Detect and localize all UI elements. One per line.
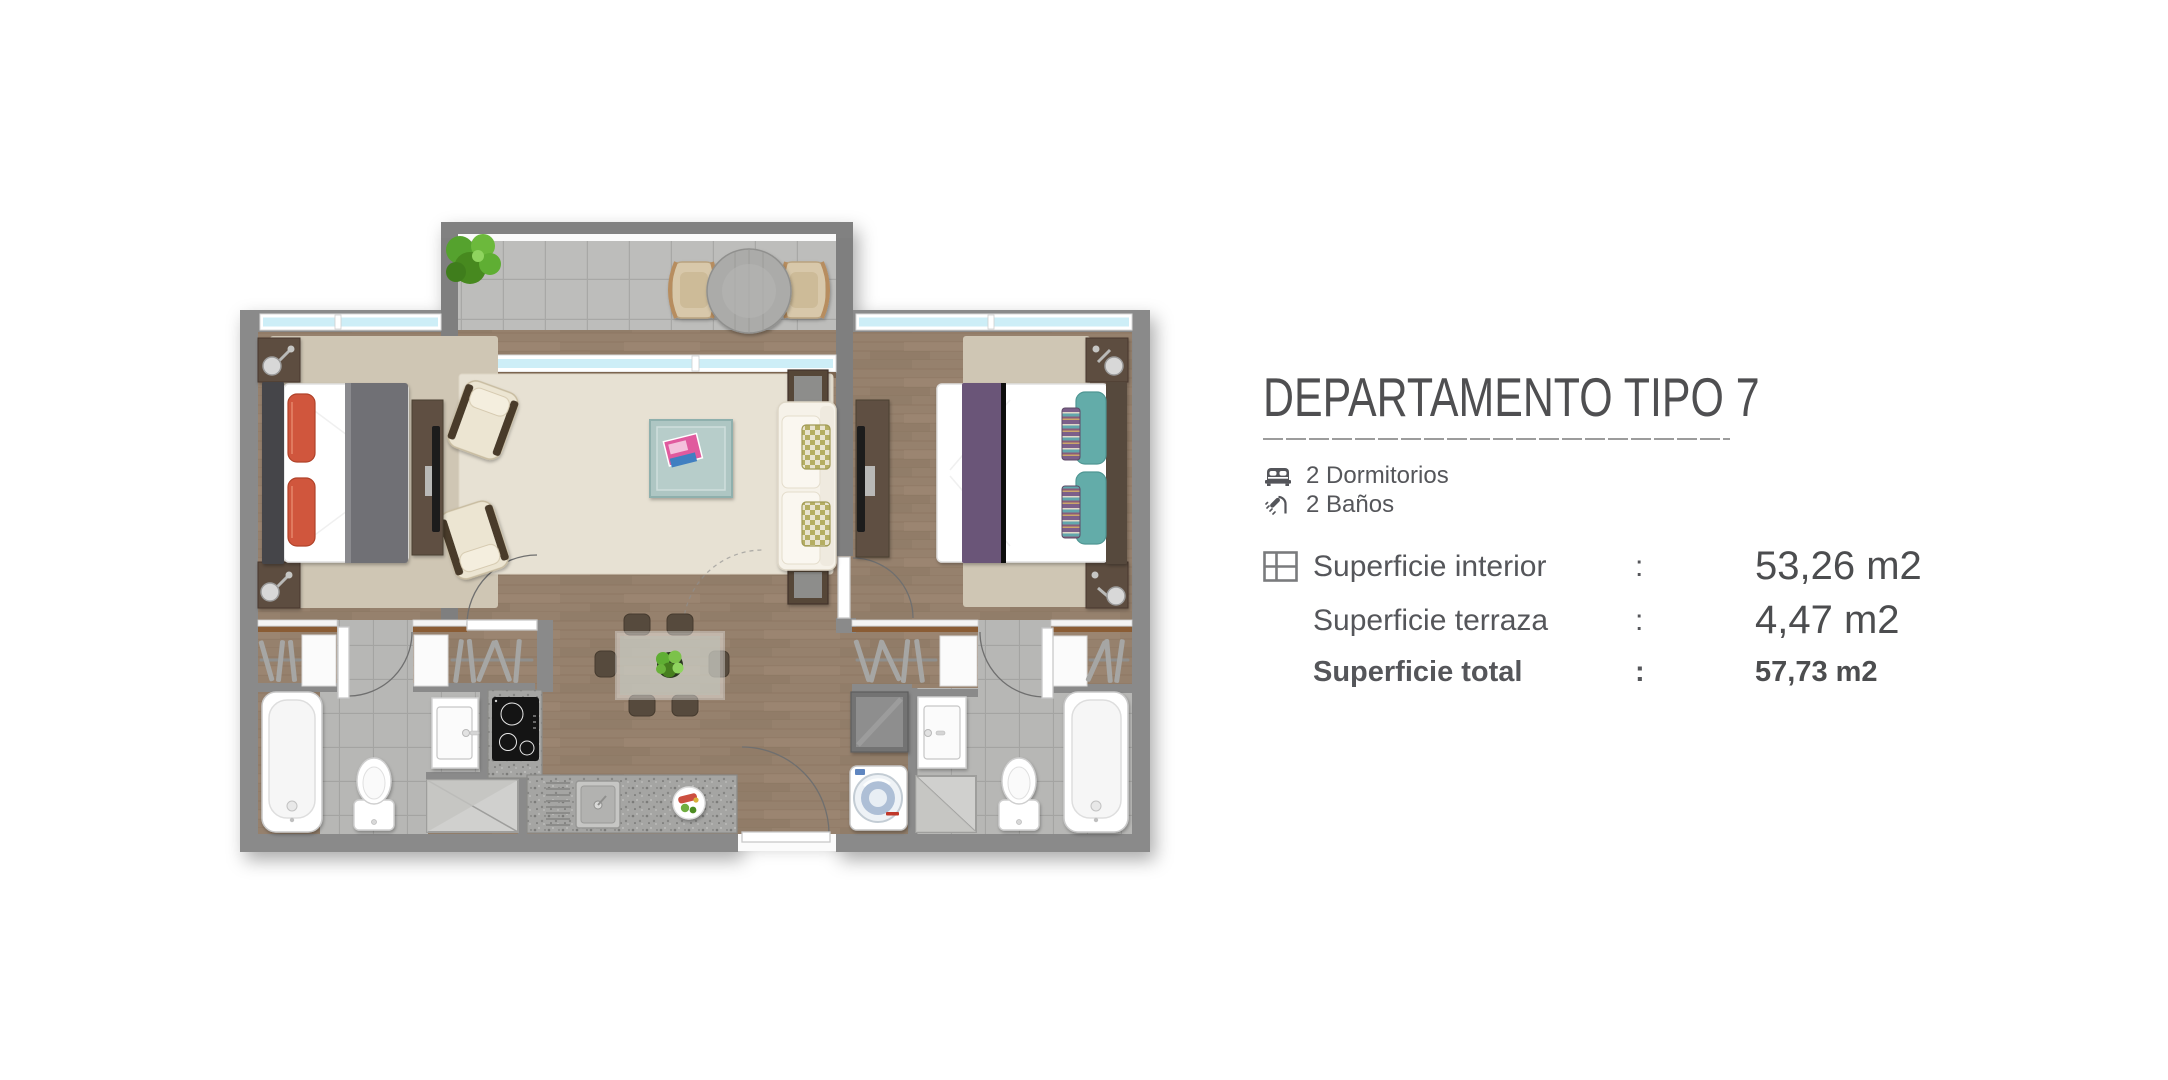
end-table-lower: [788, 566, 828, 604]
surface-colon: :: [1635, 604, 1643, 638]
shower-2: [916, 776, 976, 832]
food-plate: [673, 787, 705, 819]
cooktop: [492, 697, 539, 761]
surface-label: Superficie total: [1313, 656, 1635, 689]
shower-1: [427, 780, 518, 832]
surface-colon: :: [1635, 550, 1643, 584]
bed-runner: [962, 383, 1006, 563]
page-background: DEPARTAMENTO TIPO 7 2 Dormitorios: [0, 0, 2168, 1080]
lamp: [263, 357, 281, 375]
nightstand-1a: [258, 338, 300, 382]
surface-value: 4,47 m2: [1755, 598, 2023, 643]
nightstand-1b: [258, 562, 300, 608]
lamp: [1105, 357, 1123, 375]
blanket: [345, 383, 408, 563]
feature-list: 2 Dormitorios 2 Baños: [1263, 461, 2023, 519]
lamp: [261, 583, 279, 601]
tv-console-2: [856, 400, 889, 557]
bathtub-2: [1064, 692, 1128, 832]
nightstand-2b: [1086, 562, 1128, 608]
feature-bathrooms: 2 Baños: [1263, 490, 2023, 519]
headboard: [1106, 382, 1127, 564]
sofa-cushion-2: [802, 502, 830, 546]
bathtub-1: [262, 692, 322, 832]
headboard: [262, 382, 284, 564]
bed-icon: [1263, 465, 1293, 487]
feature-bathrooms-label: 2 Baños: [1306, 491, 1394, 519]
surface-value: 53,26 m2: [1755, 544, 2023, 589]
washing-machine: [850, 766, 907, 830]
lamp: [1107, 587, 1125, 605]
floorplan-grid-icon: [1263, 551, 1313, 582]
feature-bedrooms-label: 2 Dormitorios: [1306, 462, 1449, 490]
terrace-table: [707, 249, 791, 333]
surface-value: 57,73 m2: [1755, 656, 2023, 689]
toilet-1: [354, 758, 394, 830]
sink-1: [432, 698, 479, 768]
sofa-cushion-1: [802, 425, 830, 469]
terrace-railing-lining: [458, 234, 836, 241]
coffee-table: [650, 420, 732, 497]
feature-bedrooms: 2 Dormitorios: [1263, 461, 2023, 490]
surface-table: Superficie interior : 53,26 m2 Superfici…: [1263, 544, 2023, 692]
kitchen-sink: [576, 781, 620, 828]
surface-row-total: Superficie total : 57,73 m2: [1263, 652, 2023, 692]
sink-2: [918, 697, 966, 768]
tv: [857, 426, 865, 532]
nightstand-2a: [1086, 338, 1128, 382]
surface-label: Superficie interior: [1313, 550, 1635, 584]
laundry-cabinet: [851, 692, 908, 752]
dining-table-plant: [656, 651, 684, 679]
surface-label: Superficie terraza: [1313, 604, 1635, 638]
surface-row-interior: Superficie interior : 53,26 m2: [1263, 544, 2023, 584]
tv-console-1: [412, 400, 443, 555]
bed-2: [937, 382, 1127, 564]
window-bedroom1: [260, 314, 441, 330]
shower-icon: [1263, 492, 1293, 518]
bathroom2-corridor-floor: [978, 620, 1051, 692]
accent-pillow: [1062, 408, 1080, 460]
accent-pillow: [1062, 486, 1080, 538]
bed-1: [262, 382, 408, 564]
tv: [432, 426, 440, 532]
sofa: [778, 402, 836, 570]
info-panel: DEPARTAMENTO TIPO 7 2 Dormitorios: [1263, 370, 2023, 706]
page-title: DEPARTAMENTO TIPO 7: [1263, 370, 1856, 425]
toilet-2: [999, 758, 1039, 830]
surface-row-terraza: Superficie terraza : 4,47 m2: [1263, 598, 2023, 638]
title-underline: [1263, 438, 1730, 440]
surface-colon: :: [1635, 656, 1645, 689]
window-bedroom2: [856, 314, 1132, 330]
